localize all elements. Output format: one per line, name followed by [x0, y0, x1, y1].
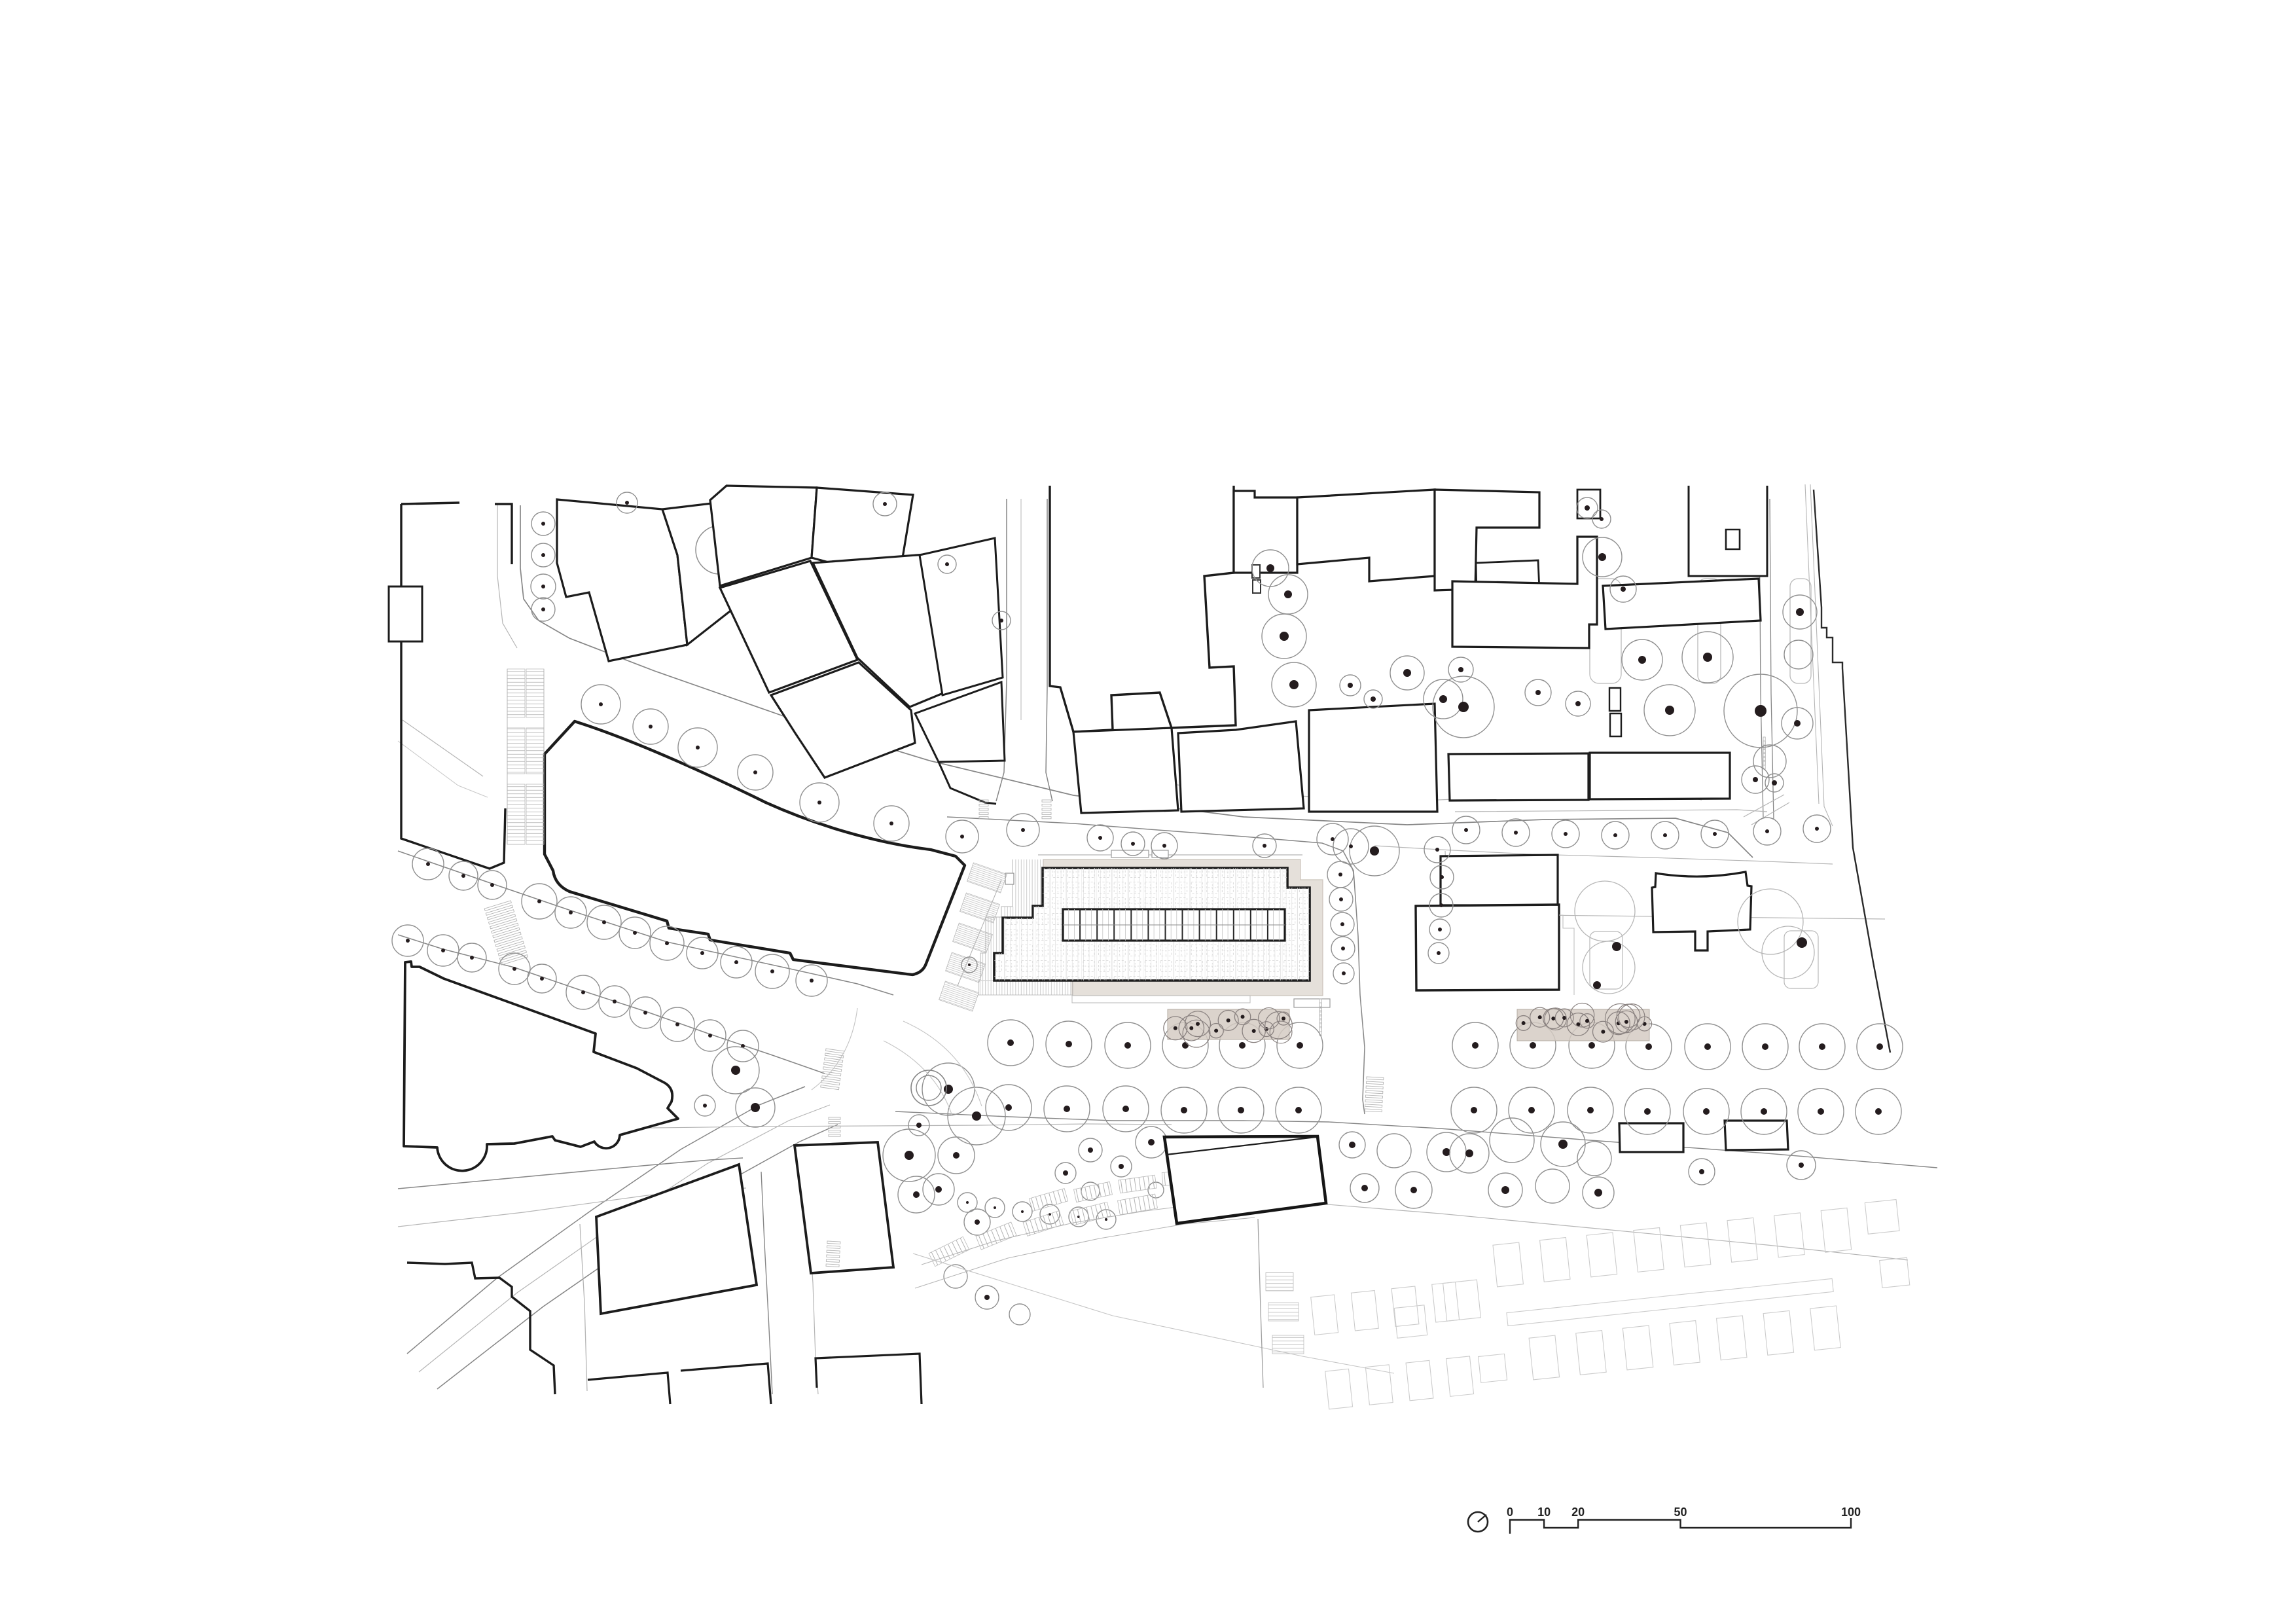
svg-text:100: 100	[1841, 1506, 1861, 1519]
svg-text:20: 20	[1571, 1506, 1585, 1519]
svg-text:50: 50	[1674, 1506, 1687, 1519]
svg-text:10: 10	[1537, 1506, 1551, 1519]
svg-text:0: 0	[1507, 1506, 1513, 1519]
